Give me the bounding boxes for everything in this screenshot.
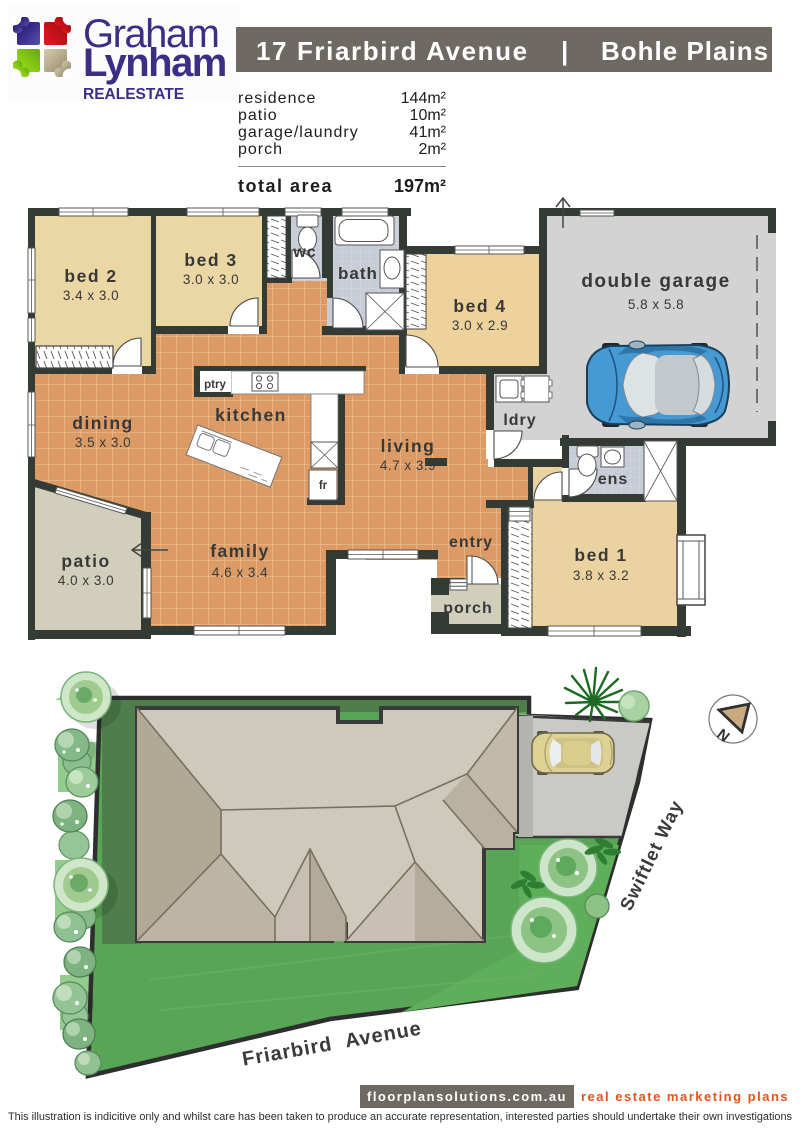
- svg-text:ldry: ldry: [503, 412, 536, 429]
- svg-text:4.0 x 3.0: 4.0 x 3.0: [58, 573, 114, 588]
- svg-text:fr: fr: [319, 480, 328, 492]
- svg-text:double garage: double garage: [581, 271, 730, 292]
- svg-text:bed 1: bed 1: [574, 545, 627, 565]
- svg-text:3.8 x 3.2: 3.8 x 3.2: [573, 568, 629, 583]
- svg-text:3.0 x 2.9: 3.0 x 2.9: [452, 318, 508, 333]
- svg-text:dining: dining: [72, 413, 133, 433]
- svg-text:4.7 x 3.9: 4.7 x 3.9: [380, 458, 436, 473]
- svg-text:3.5 x 3.0: 3.5 x 3.0: [75, 435, 131, 450]
- svg-text:bath: bath: [338, 264, 378, 283]
- svg-text:kitchen: kitchen: [215, 405, 287, 425]
- svg-text:living: living: [381, 436, 436, 456]
- svg-text:ens: ens: [598, 471, 629, 488]
- svg-text:3.4 x 3.0: 3.4 x 3.0: [63, 288, 119, 303]
- svg-text:bed 2: bed 2: [64, 266, 117, 286]
- svg-text:patio: patio: [61, 551, 110, 571]
- svg-text:family: family: [210, 541, 270, 561]
- svg-text:wc: wc: [292, 244, 316, 261]
- svg-text:entry: entry: [449, 534, 493, 551]
- svg-text:bed 4: bed 4: [453, 296, 506, 316]
- svg-text:ptry: ptry: [204, 379, 226, 391]
- svg-text:porch: porch: [443, 600, 492, 617]
- svg-text:3.0 x 3.0: 3.0 x 3.0: [183, 272, 239, 287]
- svg-text:5.8 x 5.8: 5.8 x 5.8: [628, 297, 684, 312]
- svg-text:bed 3: bed 3: [184, 250, 237, 270]
- svg-text:4.6 x 3.4: 4.6 x 3.4: [212, 565, 268, 580]
